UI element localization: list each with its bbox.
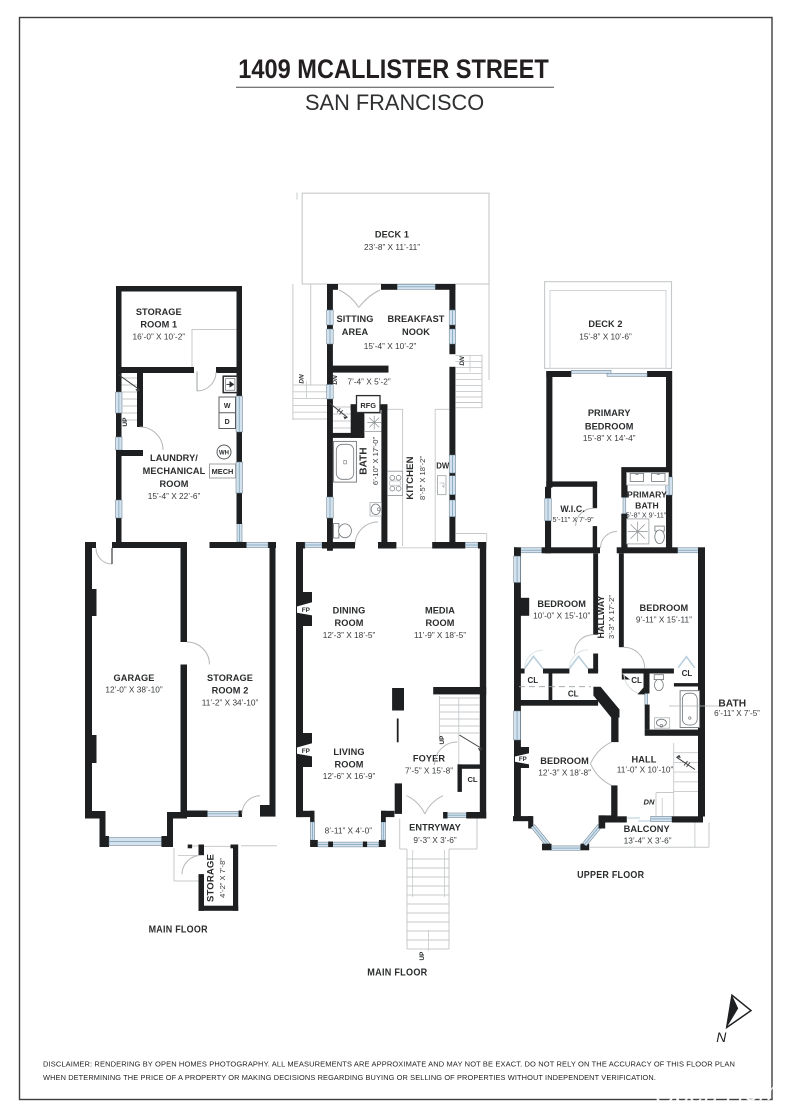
svg-text:23’-8” X 11’-11”: 23’-8” X 11’-11” xyxy=(364,242,420,252)
svg-text:BATH: BATH xyxy=(718,699,746,710)
svg-text:PRIMARY: PRIMARY xyxy=(588,408,631,418)
svg-text:SITTING: SITTING xyxy=(337,314,374,324)
svg-text:BEDROOM: BEDROOM xyxy=(540,756,589,766)
svg-text:HALLWAY: HALLWAY xyxy=(596,596,606,639)
svg-text:15’-8” X 10’-6”: 15’-8” X 10’-6” xyxy=(579,332,632,342)
svg-text:DN: DN xyxy=(332,375,339,385)
svg-text:AREA: AREA xyxy=(342,327,369,337)
svg-text:12’-0” X 38’-10”: 12’-0” X 38’-10” xyxy=(105,685,162,695)
svg-text:CL: CL xyxy=(467,775,477,784)
svg-text:UP: UP xyxy=(122,417,129,427)
svg-text:WH: WH xyxy=(219,450,229,456)
svg-text:9’-3” X 3’-6”: 9’-3” X 3’-6” xyxy=(413,835,457,845)
svg-text:9’-11” X 15’-11”: 9’-11” X 15’-11” xyxy=(636,615,692,625)
svg-text:ROOM: ROOM xyxy=(335,760,364,770)
svg-text:BEDROOM: BEDROOM xyxy=(640,603,689,613)
svg-text:DECK 1: DECK 1 xyxy=(375,230,409,240)
svg-text:15’-8” X 14’-4”: 15’-8” X 14’-4” xyxy=(583,433,636,443)
svg-text:BEDROOM: BEDROOM xyxy=(537,599,586,609)
svg-text:15’-4” X 22’-6”: 15’-4” X 22’-6” xyxy=(148,491,201,501)
svg-text:UPPER FLOOR: UPPER FLOOR xyxy=(577,869,644,881)
svg-text:DN: DN xyxy=(644,798,655,807)
svg-text:ROOM 2: ROOM 2 xyxy=(212,686,249,696)
svg-text:PRIMARY: PRIMARY xyxy=(627,490,667,500)
svg-text:5’-8” X 9’-11”: 5’-8” X 9’-11” xyxy=(626,512,667,520)
svg-text:MAIN FLOOR: MAIN FLOOR xyxy=(149,924,208,936)
svg-text:ENTRYWAY: ENTRYWAY xyxy=(409,823,461,833)
svg-text:15’-4” X 10’-2”: 15’-4” X 10’-2” xyxy=(364,341,417,351)
svg-text:8’-5” X 18’-2”: 8’-5” X 18’-2” xyxy=(418,456,427,500)
svg-text:ROOM: ROOM xyxy=(426,618,455,628)
svg-text:MEDIA: MEDIA xyxy=(425,606,455,616)
svg-text:6’-10” X 17’-0”: 6’-10” X 17’-0” xyxy=(371,436,380,485)
svg-text:UP: UP xyxy=(439,735,446,745)
svg-text:FP: FP xyxy=(519,756,527,763)
svg-text:BATH: BATH xyxy=(635,501,659,511)
svg-text:ROOM: ROOM xyxy=(160,479,189,489)
svg-text:CL: CL xyxy=(527,676,538,685)
svg-text:STORAGE: STORAGE xyxy=(136,307,182,317)
svg-text:7’-4” X 5’-2”: 7’-4” X 5’-2” xyxy=(347,377,391,387)
svg-text:W: W xyxy=(224,403,231,410)
svg-text:ROOM 1: ROOM 1 xyxy=(140,320,177,330)
svg-text:W.I.C.: W.I.C. xyxy=(560,504,585,514)
svg-text:MAIN FLOOR: MAIN FLOOR xyxy=(367,967,427,979)
svg-text:Open Homes: Open Homes xyxy=(654,1075,792,1110)
svg-text:1409 MCALLISTER STREET: 1409 MCALLISTER STREET xyxy=(238,54,549,84)
svg-text:7’-5” X 15’-8”: 7’-5” X 15’-8” xyxy=(405,766,453,776)
svg-text:SAN FRANCISCO: SAN FRANCISCO xyxy=(305,90,484,115)
svg-text:KITCHEN: KITCHEN xyxy=(405,456,416,499)
svg-text:MECHANICAL: MECHANICAL xyxy=(143,466,206,476)
svg-text:CL: CL xyxy=(682,669,693,678)
svg-text:11’-0” X 10’-10”: 11’-0” X 10’-10” xyxy=(617,765,674,775)
svg-text:LIVING: LIVING xyxy=(333,747,364,757)
svg-text:LAUNDRY/: LAUNDRY/ xyxy=(150,453,198,463)
svg-text:ROOM: ROOM xyxy=(335,618,364,628)
svg-text:3’-3” X 17’-2”: 3’-3” X 17’-2” xyxy=(607,595,616,639)
svg-text:BALCONY: BALCONY xyxy=(624,824,670,834)
svg-text:12’-3” X 18’-8”: 12’-3” X 18’-8” xyxy=(538,768,591,778)
svg-text:D: D xyxy=(225,419,230,426)
svg-text:STORAGE: STORAGE xyxy=(206,854,217,902)
svg-text:HALL: HALL xyxy=(632,755,657,765)
svg-text:DECK 2: DECK 2 xyxy=(588,319,622,329)
svg-text:16’-0” X 10’-2”: 16’-0” X 10’-2” xyxy=(133,332,186,342)
svg-text:DW: DW xyxy=(436,461,450,470)
svg-text:11’-2” X 34’-10”: 11’-2” X 34’-10” xyxy=(202,698,259,708)
svg-text:DN: DN xyxy=(459,356,466,366)
svg-text:UP: UP xyxy=(419,951,426,961)
svg-text:4’-2” X 7’-8”: 4’-2” X 7’-8” xyxy=(218,858,227,898)
svg-text:CL: CL xyxy=(631,676,642,685)
svg-text:DN: DN xyxy=(299,374,306,384)
svg-text:MECH: MECH xyxy=(212,467,234,476)
svg-text:11’-9” X 18’-5”: 11’-9” X 18’-5” xyxy=(414,630,466,640)
svg-text:N: N xyxy=(716,1029,727,1045)
svg-text:FOYER: FOYER xyxy=(413,754,445,764)
svg-text:BREAKFAST: BREAKFAST xyxy=(387,314,444,324)
svg-text:FP: FP xyxy=(302,748,311,755)
svg-text:BEDROOM: BEDROOM xyxy=(585,422,634,432)
svg-text:6’-11” X 7’-5”: 6’-11” X 7’-5” xyxy=(714,709,760,718)
svg-text:DISCLAIMER: RENDERING BY OPEN: DISCLAIMER: RENDERING BY OPEN HOMES PHOT… xyxy=(43,1060,735,1069)
svg-text:10’-0” X 15’-10”: 10’-0” X 15’-10” xyxy=(533,611,590,621)
svg-text:RFG: RFG xyxy=(360,401,376,410)
svg-text:NOOK: NOOK xyxy=(402,327,430,337)
svg-text:FP: FP xyxy=(302,607,311,614)
svg-text:CL: CL xyxy=(568,690,579,699)
svg-text:12’-3” X 18’-5”: 12’-3” X 18’-5” xyxy=(323,630,376,640)
svg-text:13’-4” X 3’-6”: 13’-4” X 3’-6” xyxy=(624,836,672,846)
svg-text:WHEN DETERMINING THE PRICE OF: WHEN DETERMINING THE PRICE OF A PROPERTY… xyxy=(43,1073,656,1082)
svg-text:5’-11” X 7’-9”: 5’-11” X 7’-9” xyxy=(552,515,594,524)
svg-text:STORAGE: STORAGE xyxy=(207,673,253,683)
svg-text:GARAGE: GARAGE xyxy=(114,673,155,683)
svg-text:8’-11” X 4’-0”: 8’-11” X 4’-0” xyxy=(325,826,373,836)
svg-text:DINING: DINING xyxy=(333,606,366,616)
svg-text:12’-6” X 16’-9”: 12’-6” X 16’-9” xyxy=(323,771,376,781)
svg-text:BATH: BATH xyxy=(359,447,370,474)
